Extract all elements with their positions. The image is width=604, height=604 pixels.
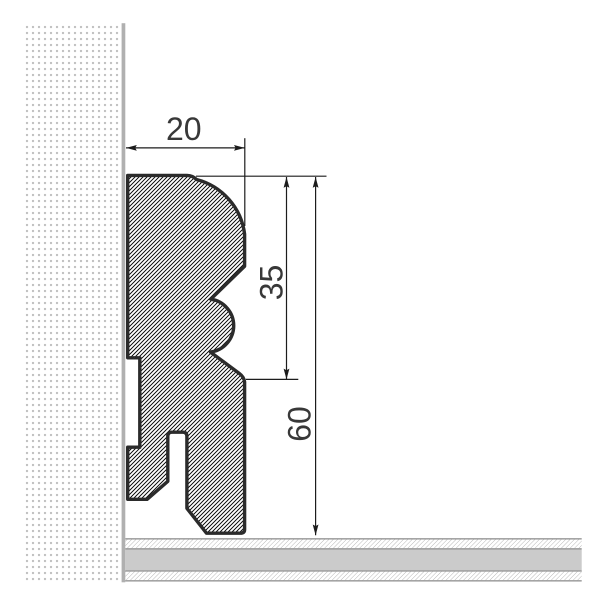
svg-text:20: 20 <box>166 111 202 147</box>
svg-text:60: 60 <box>281 406 317 442</box>
svg-text:35: 35 <box>253 265 289 301</box>
